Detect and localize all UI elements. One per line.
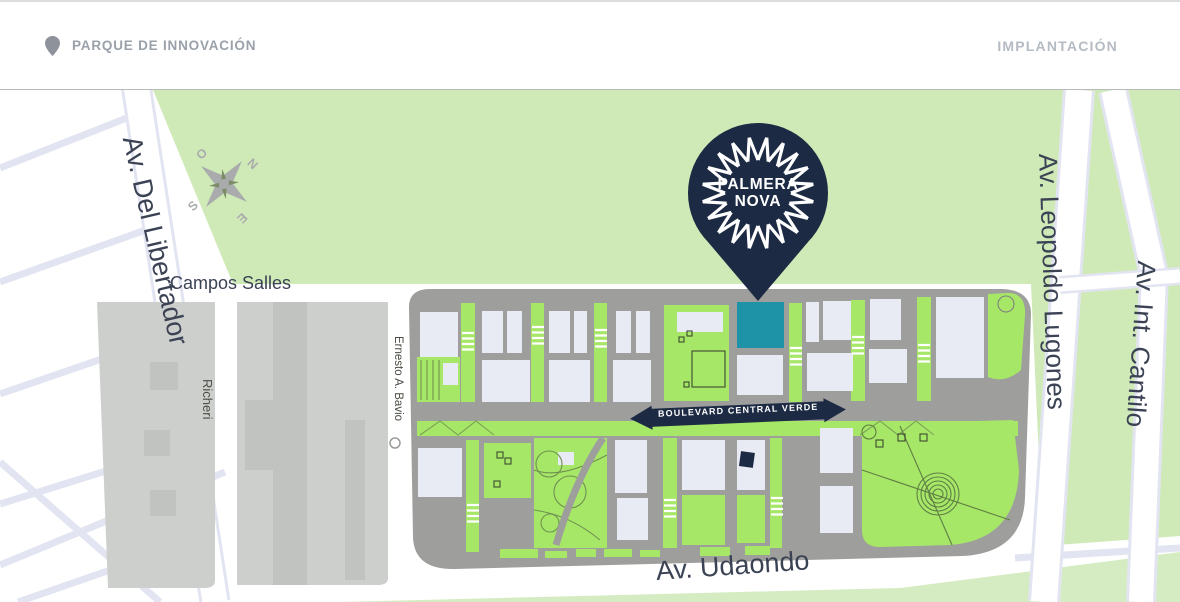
site-map <box>0 90 1180 602</box>
map-marker-label: PALMERA NOVA <box>698 176 818 210</box>
header-left: PARQUE DE INNOVACIÓN <box>45 36 256 56</box>
small-structure-glyph <box>739 451 755 468</box>
header-bar: PARQUE DE INNOVACIÓN IMPLANTACIÓN <box>0 0 1180 90</box>
street-label-richeri: Richeri <box>200 379 215 419</box>
street-label-campos-salles: Campos Salles <box>170 273 291 294</box>
page-title: PARQUE DE INNOVACIÓN <box>72 38 256 53</box>
highlight-block <box>737 302 784 348</box>
street-label-bavio: Ernesto A. Bavio <box>392 336 404 421</box>
parcels-layer <box>97 302 400 588</box>
map-marker-label-line2: NOVA <box>698 193 818 210</box>
implantation-page: PARQUE DE INNOVACIÓN IMPLANTACIÓN <box>0 0 1180 602</box>
map-marker-label-line1: PALMERA <box>698 176 818 193</box>
masterplan <box>409 289 1031 569</box>
location-pin-icon <box>45 36 60 56</box>
section-label: IMPLANTACIÓN <box>997 38 1118 54</box>
